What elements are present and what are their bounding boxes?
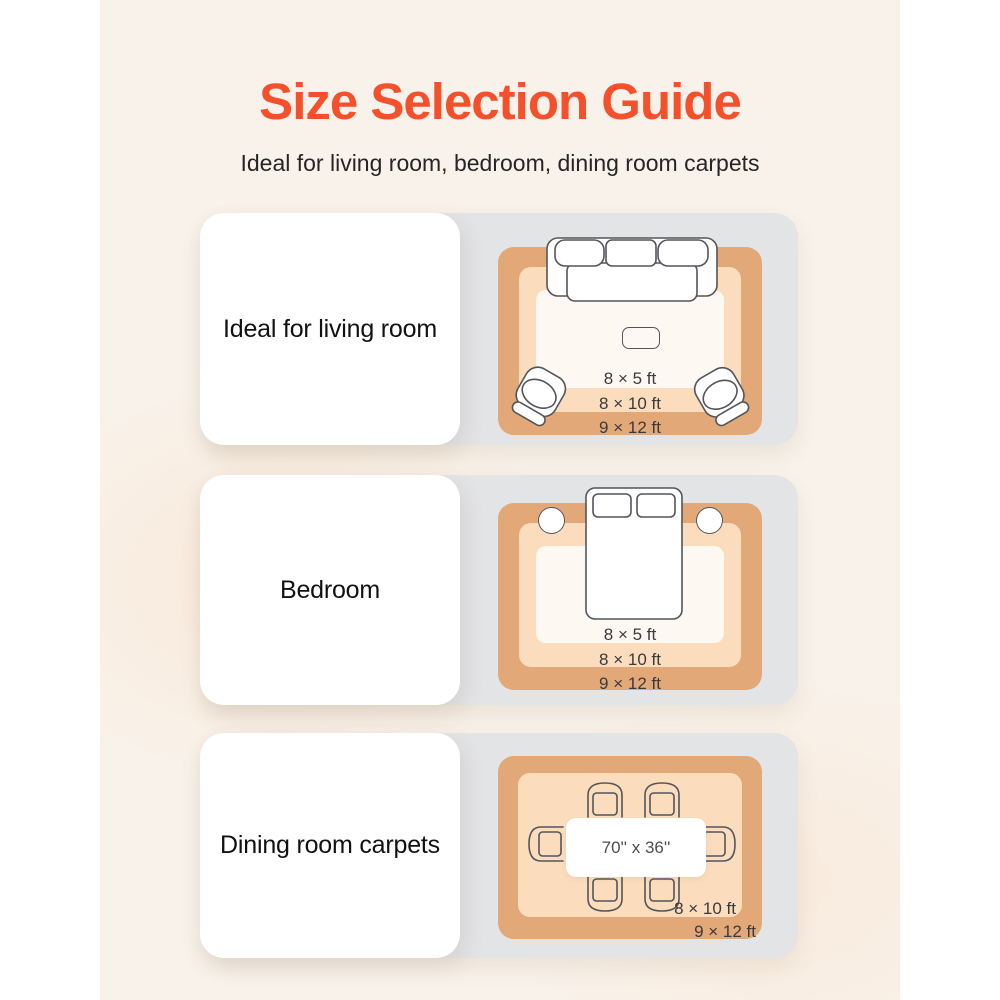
size-label-8x10: 8 × 10 ft bbox=[498, 394, 762, 414]
size-label-9x12: 9 × 12 ft bbox=[498, 674, 762, 694]
pillow-icon bbox=[593, 494, 631, 517]
dining-chair-icon bbox=[583, 780, 627, 820]
size-label-8x10: 8 × 10 ft bbox=[498, 650, 762, 670]
row-living-room: Ideal for living room bbox=[200, 213, 798, 445]
size-label-8x10: 8 × 10 ft bbox=[674, 899, 736, 919]
size-label-8x5: 8 × 5 ft bbox=[498, 369, 762, 389]
nightstand-icon bbox=[538, 507, 565, 534]
size-label-8x5: 8 × 5 ft bbox=[498, 625, 762, 645]
infographic-page: Size Selection Guide Ideal for living ro… bbox=[0, 0, 1000, 1000]
page-subtitle: Ideal for living room, bedroom, dining r… bbox=[0, 150, 1000, 177]
dining-chair-icon bbox=[526, 822, 566, 866]
dining-chair-icon bbox=[583, 874, 627, 914]
row-label-card: Dining room carpets bbox=[200, 733, 460, 958]
row-label: Ideal for living room bbox=[223, 315, 437, 344]
rug-diagram-dining-room: 70'' x 36'' 8 × 10 ft 9 × 12 ft bbox=[498, 756, 762, 939]
pillow-icon bbox=[637, 494, 675, 517]
row-label-card: Bedroom bbox=[200, 475, 460, 705]
size-label-9x12: 9 × 12 ft bbox=[694, 922, 756, 942]
nightstand-icon bbox=[696, 507, 723, 534]
table-size-label: 70'' x 36'' bbox=[602, 838, 671, 858]
row-label-card: Ideal for living room bbox=[200, 213, 460, 445]
sofa-icon bbox=[546, 237, 718, 303]
row-dining-room: Dining room carpets bbox=[200, 733, 798, 958]
rug-diagram-bedroom: 8 × 5 ft 8 × 10 ft 9 × 12 ft bbox=[498, 503, 762, 690]
coffee-table-icon bbox=[622, 327, 660, 349]
rug-diagram-living-room: 8 × 5 ft 8 × 10 ft 9 × 12 ft bbox=[498, 247, 762, 435]
page-title: Size Selection Guide bbox=[0, 72, 1000, 131]
row-label: Bedroom bbox=[280, 576, 380, 605]
row-label: Dining room carpets bbox=[220, 831, 440, 860]
row-bedroom: Bedroom 8 × 5 ft 8 × 10 ft 9 × 12 ft bbox=[200, 475, 798, 705]
bed-icon bbox=[585, 487, 683, 621]
size-label-9x12: 9 × 12 ft bbox=[498, 418, 762, 438]
dining-table-icon: 70'' x 36'' bbox=[566, 818, 706, 877]
dining-chair-icon bbox=[640, 780, 684, 820]
